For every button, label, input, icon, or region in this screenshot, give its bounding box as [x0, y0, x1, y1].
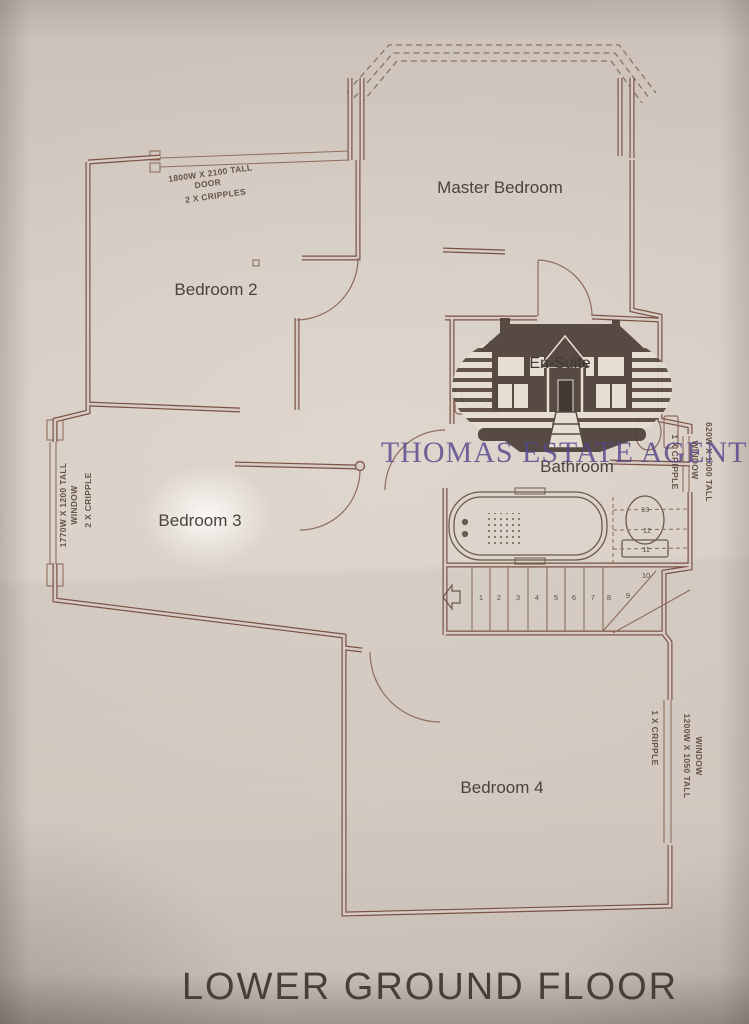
- stair-step-number: 1: [479, 593, 483, 602]
- bath-tap: [463, 532, 468, 537]
- logo-house: [478, 318, 648, 452]
- bedroom4-window-dim: 1200W X 1050 TALL: [682, 714, 692, 799]
- stair-step-number: 4: [535, 593, 539, 602]
- bay-window: [347, 45, 656, 104]
- floorplan-svg: 1 2 3 4 5 6 7 8 9 10 11 12 13 1800W X 21…: [0, 0, 749, 1024]
- room-label-bedroom4: Bedroom 4: [460, 778, 543, 797]
- stair-step-number: 13: [641, 505, 649, 514]
- walls: [55, 78, 690, 914]
- bathroom-fixtures: [449, 488, 668, 564]
- floorplan-photo: 1 2 3 4 5 6 7 8 9 10 11 12 13 1800W X 21…: [0, 0, 749, 1024]
- room-label-bedroom2: Bedroom 2: [174, 280, 257, 299]
- bath-tap: [463, 520, 468, 525]
- stair-step-number: 7: [591, 593, 595, 602]
- bedroom4-door-arc: [370, 652, 440, 722]
- bedroom4-window-cripples: 1 X CRIPPLE: [650, 710, 660, 765]
- page-title: LOWER GROUND FLOOR: [182, 966, 678, 1009]
- stair-step-number: 8: [607, 593, 611, 602]
- stair-step-number: 10: [642, 571, 650, 580]
- stair-step-number: 3: [516, 593, 520, 602]
- bathroom-toilet: [626, 496, 664, 544]
- watermark-agency-name: THOMAS ESTATE AGENTS: [381, 436, 749, 469]
- bedroom2-door-arc: [297, 258, 358, 320]
- watermark-logo: En-Suite: [452, 318, 672, 452]
- left-window-type: WINDOW: [69, 485, 79, 525]
- room-label-ensuite: En-Suite: [529, 355, 590, 372]
- room-label-bedroom3: Bedroom 3: [158, 511, 241, 530]
- bedroom4-window-type: WINDOW: [694, 736, 704, 776]
- stair-step-number: 12: [643, 526, 651, 535]
- left-window-dim: 1770W X 1200 TALL: [58, 463, 68, 548]
- bath-tub: [449, 492, 607, 560]
- stair-step-number: 2: [497, 593, 501, 602]
- stair-step-number: 11: [642, 545, 650, 554]
- stair-step-number: 9: [626, 591, 630, 600]
- master-door-arc: [538, 260, 592, 316]
- room-label-master-bedroom: Master Bedroom: [437, 178, 563, 197]
- stair-step-number: 5: [554, 593, 558, 602]
- wall-end-cap: [356, 462, 365, 471]
- stair-step-number: 6: [572, 593, 576, 602]
- shower-head: [486, 513, 520, 545]
- left-window-cripples: 2 X CRIPPLE: [83, 472, 93, 527]
- bedroom3-door-arc: [300, 470, 360, 530]
- top-door-cripples: 2 X CRIPPLES: [184, 186, 246, 204]
